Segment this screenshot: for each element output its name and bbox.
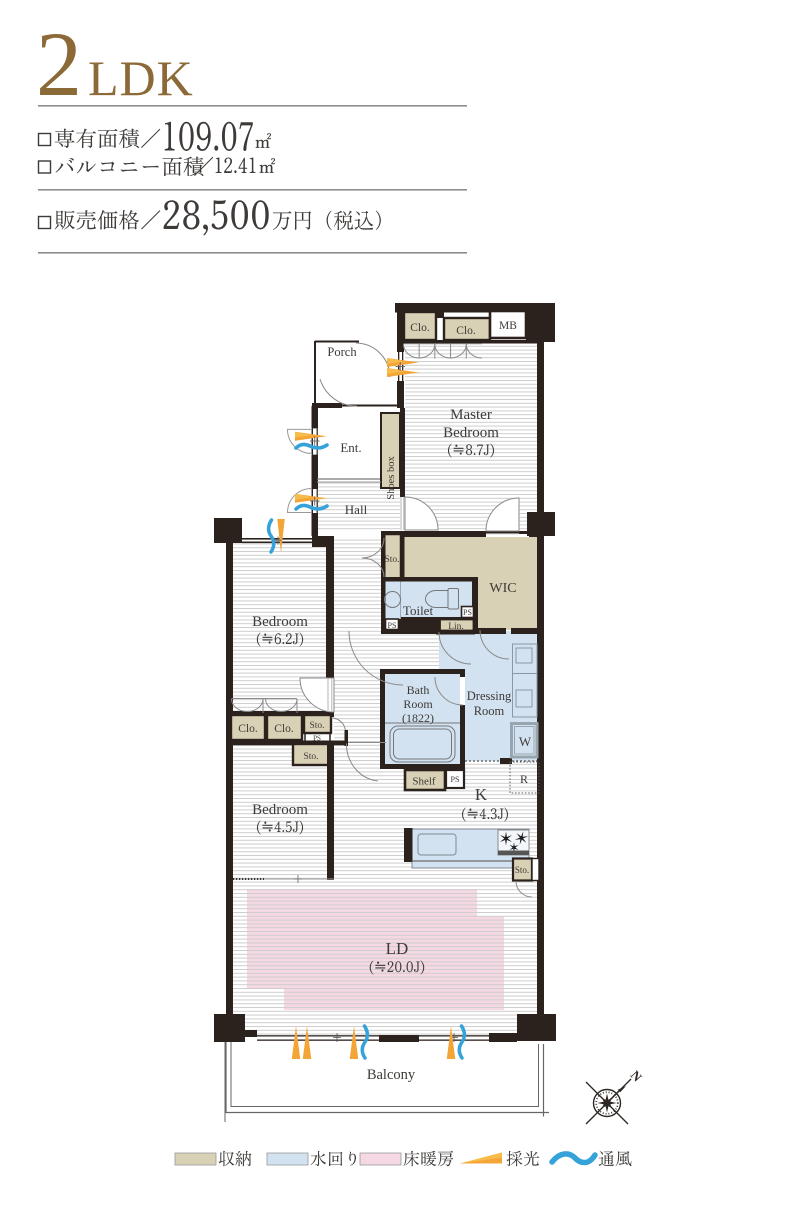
svg-text:Sto.: Sto.	[303, 752, 318, 762]
svg-text:Lin.: Lin.	[448, 622, 464, 632]
svg-text:PS: PS	[388, 621, 397, 630]
svg-text:LD: LD	[386, 939, 409, 958]
svg-text:Bedroom: Bedroom	[252, 802, 308, 818]
svg-text:Bedroom: Bedroom	[252, 614, 308, 630]
svg-text:Room: Room	[474, 704, 505, 718]
svg-text:MB: MB	[499, 320, 517, 332]
svg-text:Bath: Bath	[407, 683, 430, 697]
svg-text:WIC: WIC	[489, 581, 516, 596]
svg-text:Bedroom: Bedroom	[443, 425, 499, 441]
svg-text:Shoes box: Shoes box	[386, 456, 397, 500]
svg-text:Room: Room	[403, 697, 433, 711]
svg-text:Toilet: Toilet	[403, 603, 434, 618]
svg-text:2: 2	[36, 13, 82, 115]
svg-text:Sto.: Sto.	[515, 865, 529, 875]
svg-text:Clo.: Clo.	[238, 723, 258, 735]
svg-text:Master: Master	[450, 407, 492, 423]
svg-text:K: K	[475, 785, 488, 804]
svg-text:LDK: LDK	[88, 50, 194, 106]
svg-text:Clo.: Clo.	[456, 325, 476, 337]
svg-text:Shelf: Shelf	[412, 776, 436, 788]
svg-text:W: W	[519, 734, 532, 749]
svg-text:(1822): (1822)	[402, 711, 434, 725]
svg-text:Porch: Porch	[327, 345, 357, 359]
svg-text:Sto.: Sto.	[384, 555, 399, 565]
svg-text:PS: PS	[451, 775, 460, 784]
svg-text:PS: PS	[313, 735, 321, 743]
svg-text:Dressing: Dressing	[467, 689, 512, 703]
svg-text:Hall: Hall	[345, 502, 368, 517]
svg-text:Clo.: Clo.	[274, 723, 294, 735]
svg-text:Sto.: Sto.	[309, 721, 324, 731]
svg-text:Balcony: Balcony	[367, 1067, 416, 1083]
svg-text:Ent.: Ent.	[340, 440, 361, 455]
svg-text:PS: PS	[463, 608, 472, 617]
svg-text:Clo.: Clo.	[410, 322, 430, 334]
svg-text:R: R	[520, 772, 528, 786]
